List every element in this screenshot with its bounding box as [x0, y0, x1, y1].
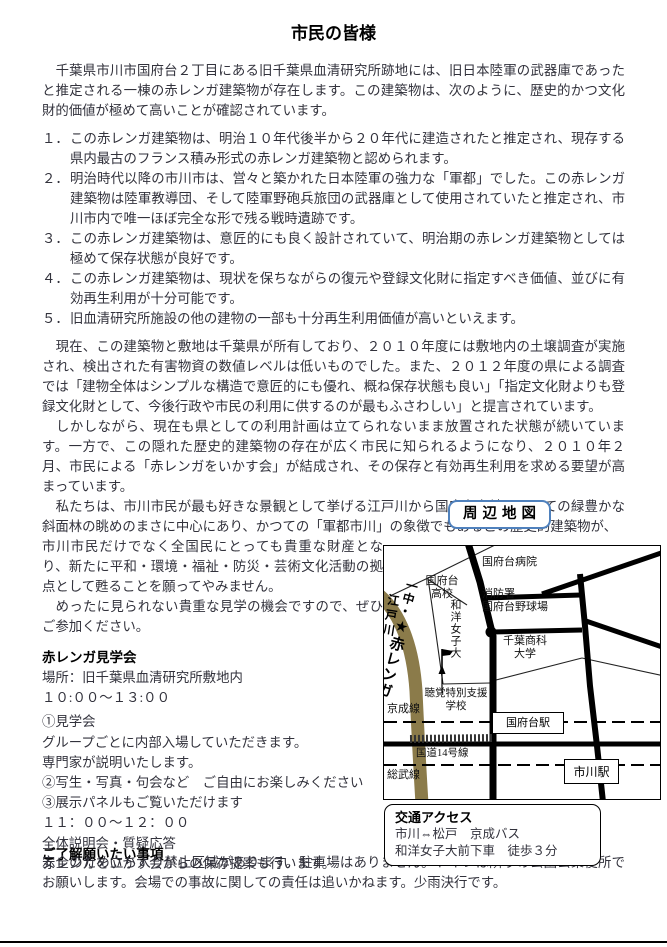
- keisei-line-label: 京成線: [387, 703, 420, 716]
- access-info-box: 交通アクセス 市川⇔松戸 京成バス 和洋女子大前下車 徒歩３分: [384, 804, 601, 866]
- tour-item-2: ②写生・写真・句会など ご自由にお楽しみください: [42, 773, 383, 793]
- paragraph-we-narrow: 市川市民だけでなく全国民にとっても貴重な財産となり、新たに平和・環境・福祉・防災…: [42, 537, 383, 597]
- item-text: この赤レンガ建築物は、現状を保ちながらの復元や登録文化財に指定すべき価値、並びに…: [70, 271, 625, 306]
- tour-heading: 赤レンガ見学会: [42, 648, 383, 668]
- numbered-points: １． この赤レンガ建築物は、明治１０年代後半から２０年代に建造されたと推定され、…: [42, 129, 625, 329]
- fire-station-label: 消防署: [482, 588, 515, 601]
- list-item: １． この赤レンガ建築物は、明治１０年代後半から２０年代に建造されたと推定され、…: [42, 129, 625, 169]
- tour-detail: グループごとに内部入場していただきます。: [42, 733, 383, 753]
- page-bottom-rule: [0, 941, 667, 943]
- highschool-label: 国府台 高校: [422, 575, 462, 601]
- area-map: 江戸川 一中・★赤レンガ 国府台病院 国府台 高校 消防署 国府台野球場 和洋女…: [383, 545, 661, 800]
- paragraph-invite: めったに見られない貴重な見学の機会ですので、ぜひご参加ください。: [42, 597, 383, 637]
- list-item: ３． この赤レンガ建築物は、意匠的にも良く設計されていて、明治期の赤レンガ建築物…: [42, 229, 625, 269]
- map-badge: 周辺地図: [448, 500, 551, 529]
- stadium-label: 国府台野球場: [482, 601, 548, 614]
- route14-label: 国道14号線: [416, 747, 469, 760]
- sobu-line-label: 総武線: [387, 769, 420, 782]
- tour-detail: 専門家が説明いたします。: [42, 753, 383, 773]
- ichikawa-station-box: 市川駅: [564, 759, 619, 784]
- item-number: ５．: [42, 309, 69, 329]
- item-text: この赤レンガ建築物は、意匠的にも良く設計されていて、明治期の赤レンガ建築物として…: [70, 231, 625, 266]
- left-column: 市川市民だけでなく全国民にとっても貴重な財産となり、新たに平和・環境・福祉・防災…: [42, 537, 383, 874]
- intro-paragraph: 千葉県市川市国府台２丁目にある旧千葉県血清研究所跡地には、旧日本陸軍の武器庫であ…: [42, 61, 625, 121]
- tour-item-1: ①見学会: [42, 712, 383, 732]
- item-text: 明治時代以降の市川市は、営々と築かれた日本陸軍の強力な「軍都」でした。この赤レン…: [70, 171, 625, 226]
- item-text: この赤レンガ建築物は、明治１０年代後半から２０年代に建造されたと推定され、現存す…: [70, 131, 625, 166]
- list-item: ５． 旧血清研究所施設の他の建物の一部も十分再生利用価値が高いといえます。: [42, 309, 625, 329]
- tour-item-3: ③展示パネルもご覧いただけます: [42, 793, 383, 813]
- item-text: 旧血清研究所施設の他の建物の一部も十分再生利用価値が高いといえます。: [70, 311, 524, 326]
- route14-hatch: [410, 738, 494, 739]
- access-stop-line: 和洋女子大前下車 徒歩３分: [395, 843, 590, 860]
- paragraph-current-status: 現在、この建築物と敷地は千葉県が所有しており、２０１０年度には敷地内の土壌調査が…: [42, 337, 625, 417]
- konodai-station-box: 国府台駅: [492, 712, 564, 734]
- hospital-label: 国府台病院: [482, 556, 537, 569]
- item-number: ２．: [42, 169, 69, 189]
- tour-time: １０:００～１３:００: [42, 688, 383, 708]
- tour-place: 場所：旧千葉県血清研究所敷地内: [42, 668, 383, 688]
- road-junction: [486, 627, 497, 638]
- item-number: １．: [42, 129, 69, 149]
- item-number: ４．: [42, 269, 69, 289]
- access-bus-line: 市川⇔松戸 京成バス: [395, 826, 590, 843]
- list-item: ２． 明治時代以降の市川市は、営々と築かれた日本陸軍の強力な「軍都」でした。この…: [42, 169, 625, 229]
- flyer-page: 市民の皆様 千葉県市川市国府台２丁目にある旧千葉県血清研究所跡地には、旧日本陸軍…: [0, 0, 667, 947]
- wayo-univ-label: 和洋女子大: [448, 599, 461, 659]
- page-title: 市民の皆様: [42, 24, 625, 44]
- item-number: ３．: [42, 229, 69, 249]
- list-item: ４． この赤レンガ建築物は、現状を保ちながらの復元や登録文化財に指定すべき価値、…: [42, 269, 625, 309]
- access-heading: 交通アクセス: [395, 809, 590, 826]
- paragraph-however: しかしながら、現在も県としての利用計画は立てられないまま放置された状態が続いてい…: [42, 417, 625, 497]
- tour-time-2: １１：００～１２：００: [42, 813, 383, 833]
- chiba-univ-label: 千葉商科 大学: [496, 635, 554, 661]
- deaf-school-label: 聴覚特別支援 学校: [420, 687, 492, 713]
